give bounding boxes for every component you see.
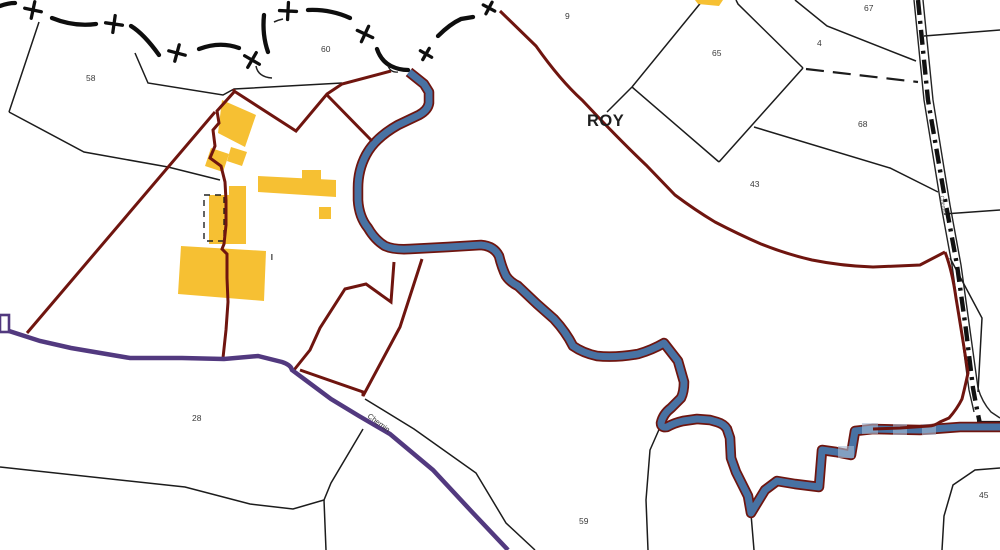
svg-text:58: 58 (86, 73, 96, 83)
svg-text:59: 59 (579, 516, 589, 526)
svg-text:28: 28 (192, 413, 202, 423)
svg-text:ROY: ROY (587, 112, 624, 130)
svg-text:60: 60 (321, 44, 331, 54)
svg-text:4: 4 (817, 38, 822, 48)
svg-text:65: 65 (712, 48, 722, 58)
svg-text:43: 43 (750, 179, 760, 189)
svg-text:68: 68 (858, 119, 868, 129)
svg-text:9: 9 (565, 11, 570, 21)
svg-text:45: 45 (979, 490, 989, 500)
svg-text:67: 67 (864, 3, 874, 13)
